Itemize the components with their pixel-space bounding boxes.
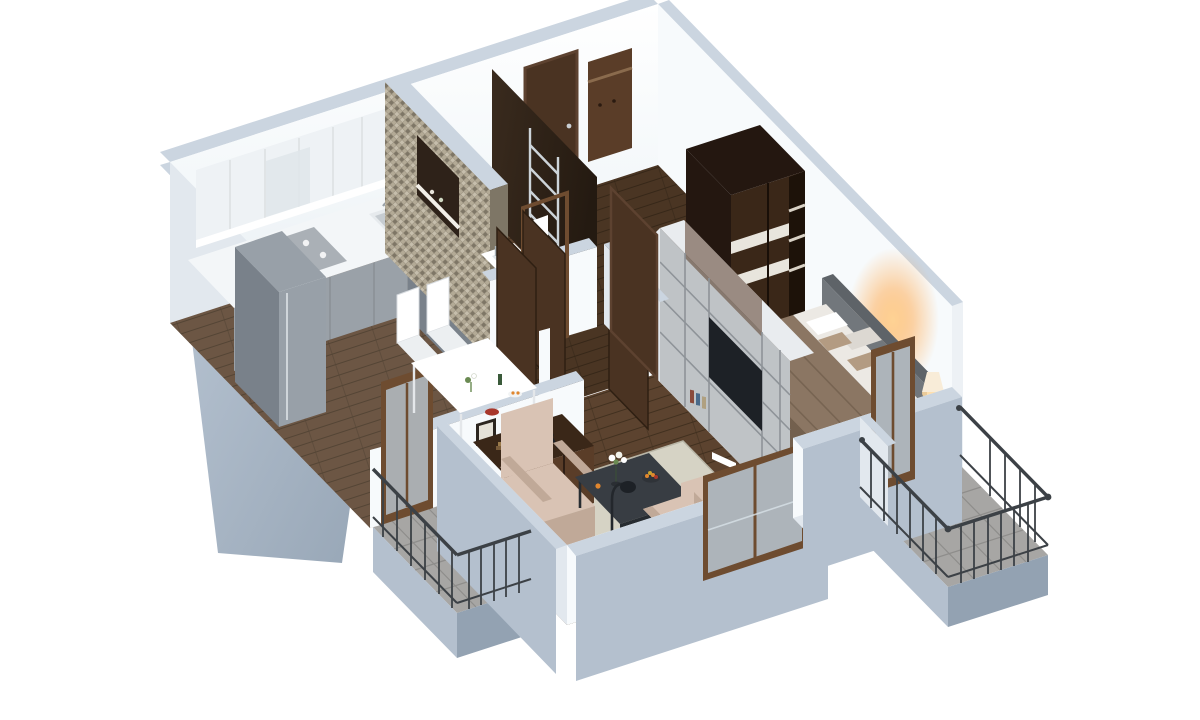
living-west-wall	[437, 423, 567, 674]
floorplan-render-canvas	[0, 0, 1200, 720]
railing-bracket	[956, 405, 962, 411]
railing-corner-post	[1045, 494, 1052, 501]
railing-bracket	[859, 437, 865, 443]
foreground-layer	[0, 0, 1200, 720]
living-west-wall-exterior	[437, 426, 556, 674]
railing-corner-post	[945, 526, 952, 533]
